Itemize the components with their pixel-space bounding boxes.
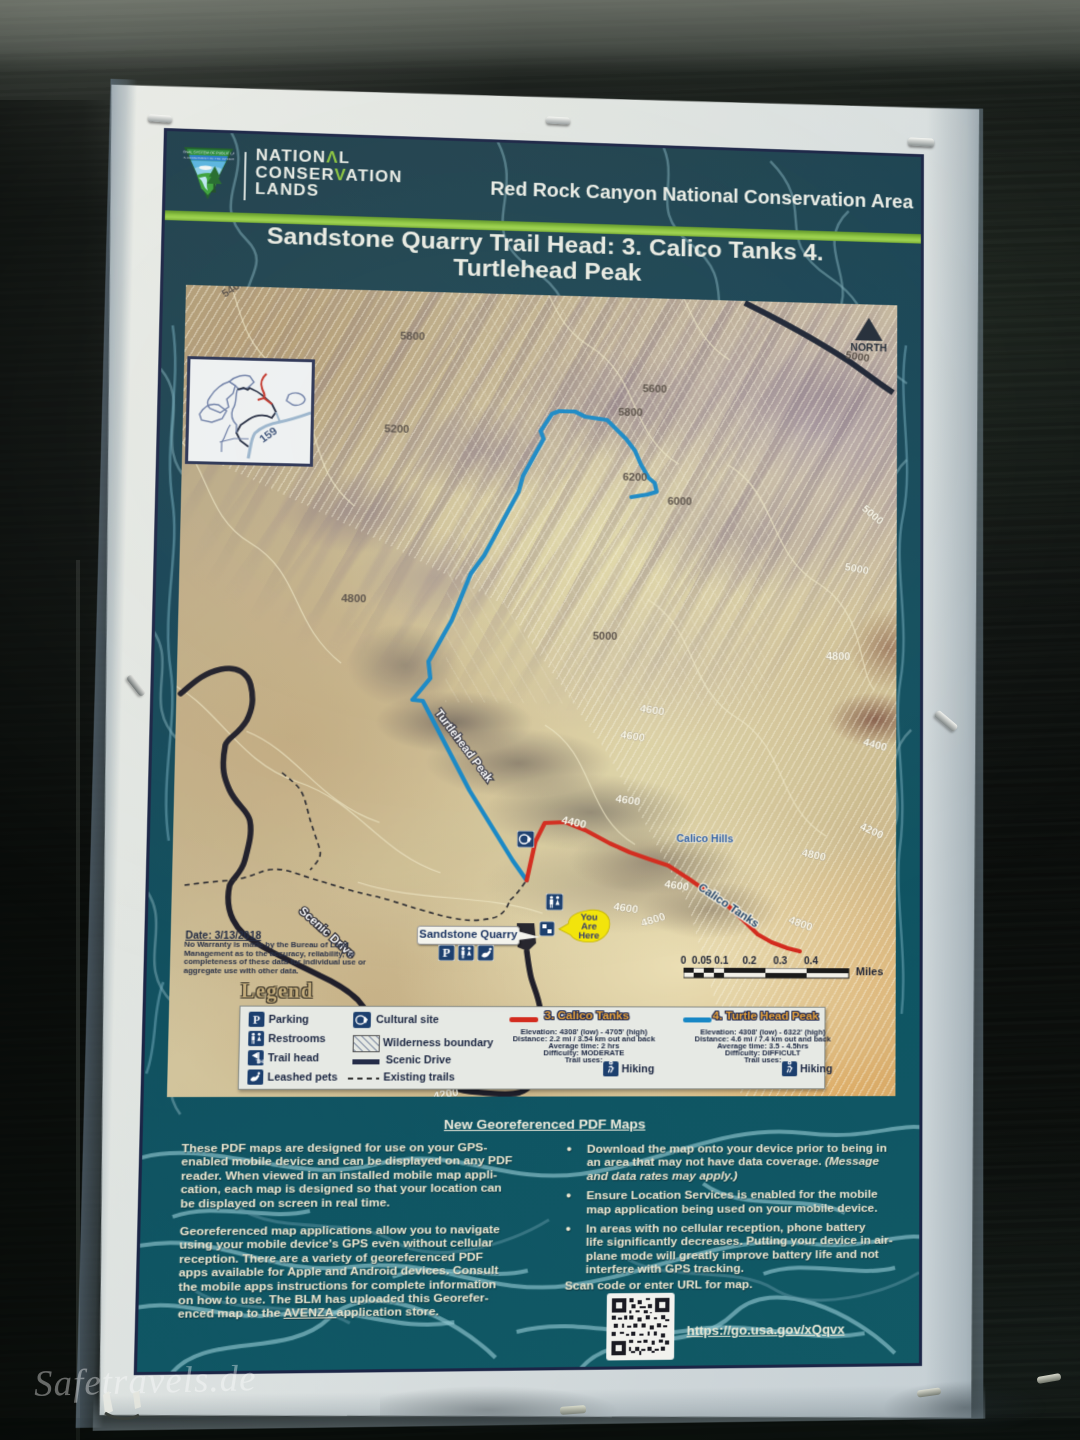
svg-text:5400: 5400 bbox=[220, 285, 248, 300]
svg-text:4800: 4800 bbox=[787, 914, 814, 933]
svg-text:4800: 4800 bbox=[826, 651, 850, 663]
svg-text:5800: 5800 bbox=[400, 331, 425, 343]
svg-text:5000: 5000 bbox=[845, 350, 870, 365]
svg-text:4400: 4400 bbox=[862, 736, 889, 754]
svg-text:Calico Tanks: Calico Tanks bbox=[696, 882, 761, 931]
svg-text:4600: 4600 bbox=[639, 703, 665, 718]
svg-text:5000: 5000 bbox=[844, 561, 870, 577]
svg-text:4600: 4600 bbox=[615, 793, 641, 808]
svg-text:5600: 5600 bbox=[643, 383, 668, 395]
svg-text:6000: 6000 bbox=[667, 496, 692, 508]
svg-text:4800: 4800 bbox=[801, 847, 827, 864]
svg-text:5000: 5000 bbox=[593, 631, 618, 643]
svg-text:4200: 4200 bbox=[858, 821, 885, 842]
svg-text:4800: 4800 bbox=[640, 911, 667, 930]
svg-text:Turtlehead Peak: Turtlehead Peak bbox=[432, 708, 495, 786]
svg-text:4800: 4800 bbox=[341, 593, 366, 605]
svg-text:4400: 4400 bbox=[560, 814, 587, 831]
svg-text:4600: 4600 bbox=[664, 878, 690, 893]
svg-text:5000: 5000 bbox=[859, 503, 885, 527]
svg-text:5200: 5200 bbox=[384, 423, 409, 435]
svg-text:P: P bbox=[443, 946, 451, 960]
svg-text:TH: TH bbox=[256, 1059, 264, 1065]
svg-text:6200: 6200 bbox=[623, 472, 648, 484]
svg-text:Here: Here bbox=[578, 930, 599, 940]
svg-text:4600: 4600 bbox=[619, 729, 645, 744]
svg-text:Calico Hills: Calico Hills bbox=[676, 834, 733, 845]
svg-text:P: P bbox=[253, 1014, 261, 1026]
svg-text:5800: 5800 bbox=[618, 407, 643, 419]
svg-text:4600: 4600 bbox=[613, 901, 639, 916]
